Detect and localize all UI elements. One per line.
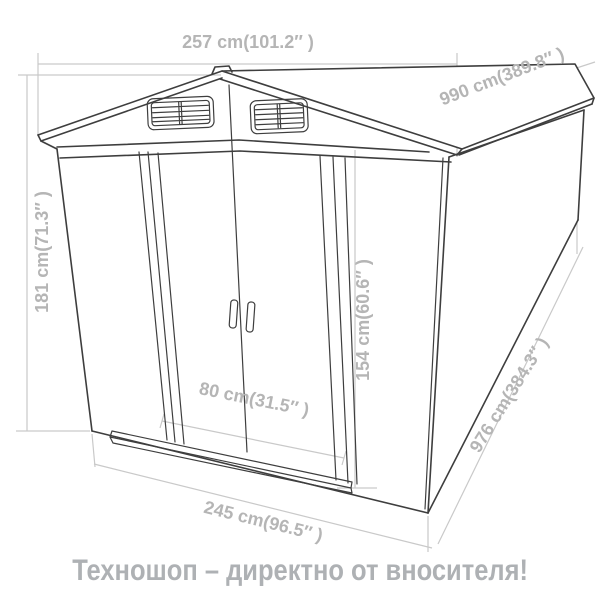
label-door-height: 154 cm(60.6″ )	[353, 259, 373, 381]
front-wall-top-edge	[57, 140, 429, 152]
dim-line-80	[162, 421, 344, 458]
roof-left-slope-outer	[38, 71, 222, 135]
right-wall-back-edge	[578, 110, 584, 220]
right-wall-bottom-edge	[428, 220, 578, 513]
label-base-length: 976 cm(384.3″ )	[466, 334, 553, 456]
caption-row: Техношоп – директно от вносителя!	[0, 554, 600, 598]
door-track	[110, 431, 352, 493]
door-header-trim	[60, 151, 451, 162]
ext-line-left-245	[92, 434, 95, 467]
left-vent-slats	[152, 101, 209, 125]
label-door-width: 80 cm(31.5″ )	[197, 378, 310, 420]
right-door-handle	[246, 302, 255, 332]
shed-dimension-diagram: 257 cm(101.2″ ) 990 cm(389.8″ ) 181 cm(7…	[0, 0, 600, 600]
right-wall-front-corner-outer	[428, 157, 449, 513]
left-jamb-line-1	[139, 152, 167, 440]
store-caption: Техношоп – директно от вносителя!	[72, 554, 528, 588]
sliding-doors	[110, 152, 357, 493]
label-height: 181 cm(71.3″ )	[32, 191, 52, 313]
shed-structure	[38, 64, 594, 513]
shed-line-drawing: 257 cm(101.2″ ) 990 cm(389.8″ ) 181 cm(7…	[0, 0, 600, 552]
walls	[57, 85, 584, 513]
right-jamb-line-1	[320, 156, 336, 480]
right-jamb-line-2	[333, 157, 348, 483]
roof-left-tip	[38, 135, 41, 141]
left-door-handle	[229, 300, 238, 328]
roof-left-slope-inner	[41, 78, 222, 141]
eave-underside-left	[41, 141, 57, 149]
label-width-bottom: 245 cm(96.5″ )	[202, 497, 325, 545]
right-wall-front-corner-inner	[425, 158, 443, 509]
front-wall-left-edge	[57, 149, 92, 431]
dim-line-245	[94, 464, 432, 548]
right-vent-slats	[255, 103, 303, 129]
label-width-top: 257 cm(101.2″ )	[182, 32, 314, 52]
